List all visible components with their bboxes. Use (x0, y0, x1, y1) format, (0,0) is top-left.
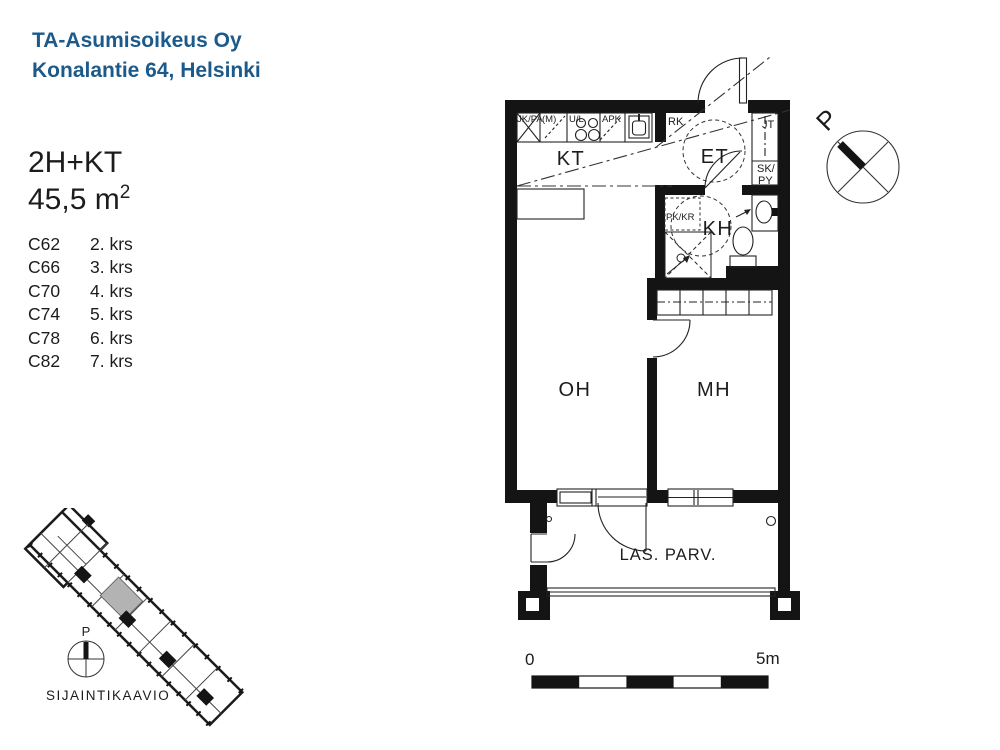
entrance-door (698, 58, 747, 103)
balcony-side-door (531, 534, 575, 562)
site-map: P SIJAINTIKAAVIO (14, 508, 294, 748)
site-caption: SIJAINTIKAAVIO (46, 688, 170, 703)
kitchen-sink (629, 114, 649, 138)
bedroom-door (653, 320, 690, 357)
north-label: P (810, 103, 843, 136)
label-electrical: RK (668, 116, 684, 128)
scale-start-label: 0 (525, 650, 534, 669)
room-label-bathroom: KH (703, 218, 734, 240)
room-label-living: OH (559, 379, 592, 401)
label-stove: U/L (569, 114, 584, 125)
kitchen-table (517, 189, 584, 219)
label-dishwasher: APK (602, 114, 622, 125)
north-compass (827, 131, 899, 203)
site-north-label: P (82, 624, 91, 639)
label-cleaning-bottom: PY (758, 175, 773, 187)
room-label-balcony: LAS. PARV. (620, 546, 717, 564)
site-compass (68, 641, 104, 677)
bedroom-window (668, 489, 733, 506)
floor-plan-page: TA-Asumisoikeus Oy Konalantie 64, Helsin… (0, 0, 1000, 750)
room-label-entry: ET (701, 146, 730, 168)
label-hall-closet: JT (762, 119, 775, 131)
toilet (730, 227, 756, 267)
label-cleaning-top: SK/ (757, 163, 776, 175)
label-fridge: JK/PA (517, 114, 543, 125)
scale-bar (532, 676, 768, 688)
balcony-door (598, 503, 646, 551)
label-washer-reserve: PK/KR (666, 212, 695, 223)
pillar-inner-notches (526, 598, 791, 611)
living-room-window (557, 489, 647, 506)
walls (505, 100, 800, 620)
label-microwave: (M) (542, 114, 556, 125)
wardrobe-row (657, 290, 772, 315)
room-label-kitchen: KT (557, 148, 586, 170)
washbasin (736, 195, 778, 231)
scale-end-label: 5m (756, 649, 780, 668)
room-label-bedroom: MH (697, 379, 731, 401)
